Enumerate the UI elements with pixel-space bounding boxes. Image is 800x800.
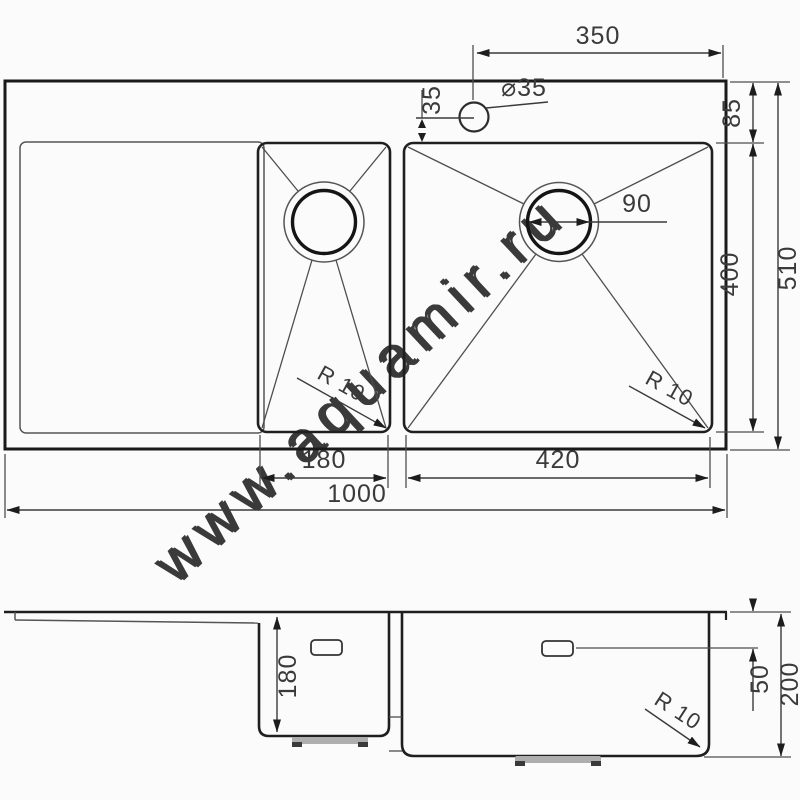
radius-side-view: R 10: [645, 686, 706, 747]
drain-fitting-small: [292, 737, 368, 744]
small-drain-hole: [293, 191, 356, 254]
dim-90-label: 90: [622, 190, 652, 218]
drain-nub-large-left: [515, 761, 525, 766]
dim-180-side-view: 180: [274, 617, 302, 732]
dim-35: 35: [416, 85, 474, 142]
dim-1000: 1000: [5, 454, 727, 518]
side-view: 180 50 200 R 10: [4, 600, 800, 766]
dim-180-label: 180: [302, 446, 347, 474]
dim-85-label: 85: [718, 98, 746, 128]
drain-nub-small-left: [292, 742, 302, 747]
drainboard-area: [20, 142, 264, 433]
dim-50-label: 50: [746, 664, 774, 694]
radius-large-bowl: R 10: [629, 365, 705, 428]
dim-35-arrow-down: [418, 133, 426, 142]
drawing-canvas: www.aquamir.ru www.aquamir.ru 350: [0, 0, 800, 800]
dim-d35-leader: [486, 102, 548, 108]
drain-nub-small-right: [358, 742, 368, 747]
dim-420: 420: [406, 435, 710, 488]
dim-200-label: 200: [776, 662, 800, 707]
dim-400-label: 400: [716, 252, 744, 297]
drain-fitting-large: [515, 756, 601, 763]
overflow-hole-small: [311, 640, 342, 655]
overflow-hole-large: [542, 641, 573, 656]
r10-large-label: R 10: [641, 365, 697, 411]
dim-d35-label: ⌀35: [501, 74, 547, 102]
drainboard-surface: [15, 620, 258, 623]
large-bowl-section: [402, 612, 709, 756]
faucet-hole: [460, 103, 489, 132]
dim-50: 50: [576, 600, 791, 711]
sink-technical-drawing: www.aquamir.ru www.aquamir.ru 350: [0, 0, 800, 800]
drain-nub-large-right: [591, 761, 601, 766]
dim-35-label: 35: [418, 85, 446, 115]
top-view: 350 ⌀35 35 90 R 10 R 10: [5, 22, 800, 518]
small-bowl-crease-tl: [262, 147, 298, 191]
dim-1000-label: 1000: [327, 480, 387, 508]
r10-side-label: R 10: [650, 686, 706, 734]
large-bowl-crease-tl: [408, 147, 524, 204]
dim-400: 400: [716, 144, 764, 432]
dim-35-arrow-up: [418, 119, 426, 128]
dim-510-label: 510: [774, 246, 800, 291]
small-drain-outer-ring: [284, 182, 364, 262]
dim-hole-diameter: ⌀35: [486, 74, 548, 108]
dim-180-depth-label: 180: [274, 654, 302, 699]
small-bowl-crease-tr: [350, 147, 386, 191]
dim-350-label: 350: [576, 22, 621, 50]
dim-420-label: 420: [536, 446, 581, 474]
